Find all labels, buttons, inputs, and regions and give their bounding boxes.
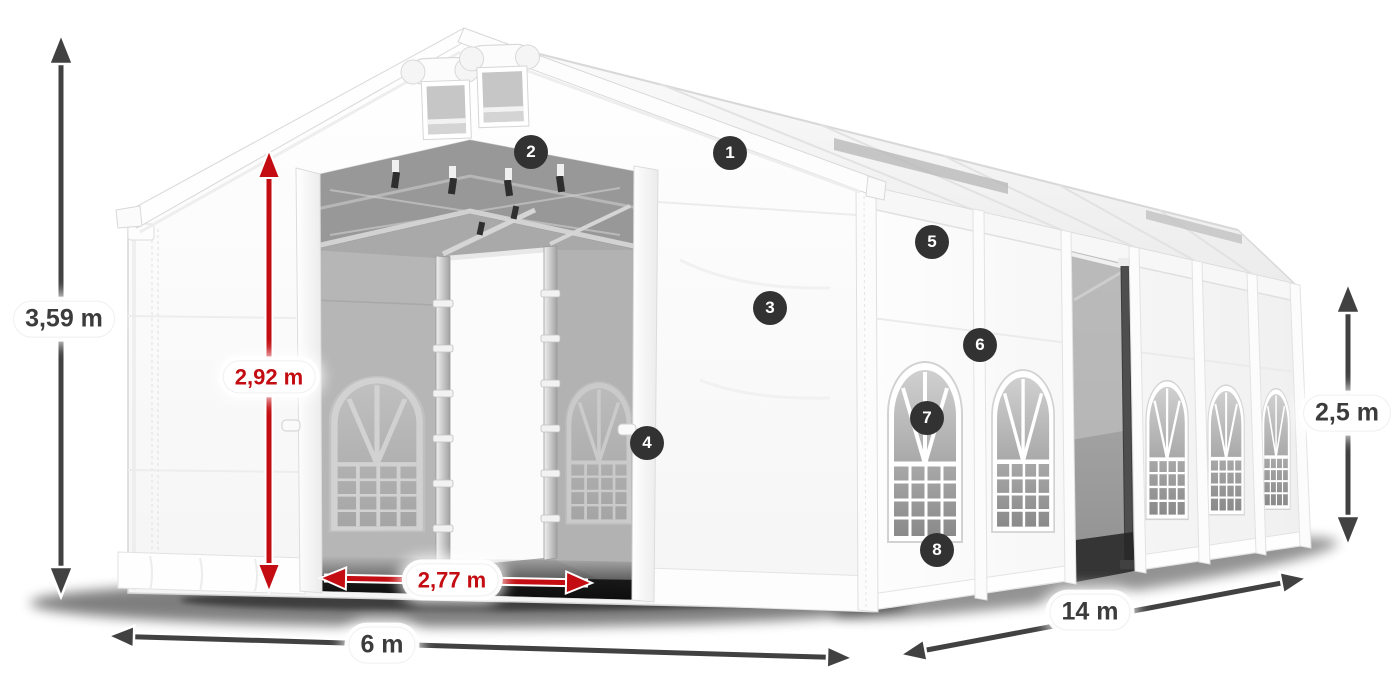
hotspot-2[interactable]: 2 <box>514 135 548 169</box>
hotspot-1[interactable]: 1 <box>713 136 747 170</box>
dim-label-overall-height: 3,59 m <box>13 301 115 338</box>
hotspot-8[interactable]: 8 <box>920 533 954 567</box>
hotspot-3[interactable]: 3 <box>753 291 787 325</box>
dim-label-side-height: 2,5 m <box>1303 395 1391 432</box>
tent-illustration <box>0 0 1400 700</box>
hotspot-7[interactable]: 7 <box>910 401 944 435</box>
left-door-handle <box>282 420 300 431</box>
right-door-column <box>632 166 658 602</box>
front-entrance-interior <box>312 140 646 600</box>
side-entrance-opening <box>1071 251 1135 582</box>
hotspot-6[interactable]: 6 <box>963 328 997 362</box>
dim-label-tent-length: 14 m <box>1050 594 1131 631</box>
dim-label-tent-width: 6 m <box>348 627 415 664</box>
front-corner-strap <box>856 184 878 612</box>
tent-width-arrow <box>108 626 853 668</box>
dim-label-entrance-width: 2,77 m <box>406 563 499 596</box>
hotspot-4[interactable]: 4 <box>630 426 664 460</box>
dim-label-entrance-height: 2,92 m <box>223 360 316 393</box>
diagram-canvas: 3,59 m 2,92 m 2,77 m 6 m 14 m 2,5 m 1 2 … <box>0 0 1400 700</box>
hotspot-5[interactable]: 5 <box>915 225 949 259</box>
